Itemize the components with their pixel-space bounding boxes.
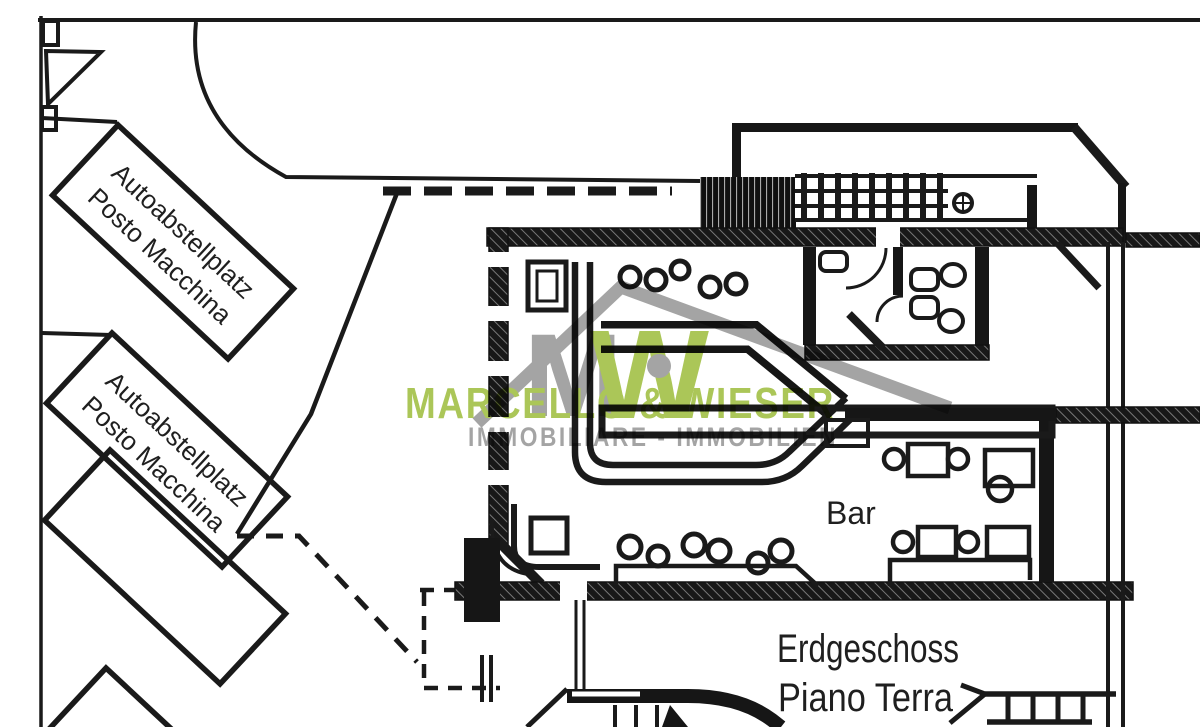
fence-wedge [662, 705, 688, 727]
parking-space-4 [41, 668, 282, 727]
stool [648, 546, 668, 566]
pergola-trellis [795, 173, 1037, 222]
wc-inner-partition [893, 247, 903, 295]
wc-door-swing-1 [846, 248, 886, 288]
stairs-direction-chevron [950, 685, 985, 723]
lounge-bench [514, 504, 600, 567]
floor-plan-page: Autoabstellplatz Posto Macchina Autoabst… [0, 0, 1200, 727]
lounge-table [531, 518, 567, 553]
stool [748, 553, 768, 573]
wc-right-wall [975, 247, 989, 345]
top-wall-door-gap [876, 226, 900, 248]
boundary-triangle [46, 51, 101, 104]
exterior-stairs [950, 685, 1116, 723]
chair [948, 449, 968, 469]
watermark-logo-dot [647, 354, 671, 378]
chair [958, 532, 978, 552]
wall-stub-upper-right [1126, 233, 1200, 247]
parking-space-2-outline [47, 333, 288, 567]
parking-connector-2 [42, 333, 111, 335]
stool [683, 534, 705, 556]
toilet-2-tank [911, 297, 938, 318]
bottom-wall-door-gap [560, 580, 587, 602]
wc-bottom-wall [805, 345, 989, 360]
parking-connector-1 [42, 118, 117, 122]
toilet-1-tank [911, 269, 938, 290]
left-wall-window-2 [486, 306, 511, 321]
terrace-chamfer-wall [1074, 127, 1126, 187]
stool [708, 540, 730, 562]
black-pillar [464, 538, 500, 622]
wc-left-partition [803, 247, 816, 345]
boundary-post-1 [43, 21, 58, 45]
stool [726, 274, 746, 294]
floor-plan-drawing: Autoabstellplatz Posto Macchina Autoabst… [0, 0, 1200, 727]
bar-room-label: Bar [826, 495, 876, 531]
trellis-end-post [1027, 185, 1037, 233]
left-wall-window-5 [486, 470, 511, 485]
service-counter-solid [845, 408, 1055, 421]
wc-sink [820, 252, 847, 271]
walkway-diagonal [527, 689, 567, 727]
trellis-slats [795, 173, 948, 222]
bar-room-right-wall [1039, 420, 1054, 582]
dashed-boundary-line [237, 536, 417, 662]
main-top-wall [487, 228, 1123, 246]
corner-table [528, 262, 566, 310]
floor-label-german: Erdgeschoss [777, 627, 959, 671]
parking-area: Autoabstellplatz Posto Macchina Autoabst… [41, 21, 294, 727]
parking-space-4-outline [41, 668, 282, 727]
chair [988, 477, 1012, 501]
wc-rooms [803, 247, 989, 360]
toilet-2-bowl [939, 310, 963, 332]
parking-space-2: Autoabstellplatz Posto Macchina [47, 333, 288, 567]
watermark-company-name: MARCELLO & WIESER [405, 379, 835, 428]
bottom-wall [455, 582, 1133, 600]
wall-stub-mid-right [1056, 407, 1200, 423]
chair [893, 532, 913, 552]
stool [770, 540, 792, 562]
wc-door-swing-2 [877, 296, 903, 322]
stool [700, 277, 720, 297]
dark-hatched-block [700, 177, 796, 230]
stool [646, 270, 666, 290]
path-guide-line [576, 600, 584, 689]
terrace-top-wall [732, 123, 1078, 132]
plot-boundary-line [237, 193, 397, 534]
table [918, 527, 956, 557]
right-diagonal-wall [1057, 243, 1099, 288]
left-wall-window-3 [486, 361, 511, 376]
road-curb-curve [195, 22, 700, 181]
floor-label-italian: Piano Terra [778, 676, 954, 720]
table [908, 444, 948, 476]
corner-table-inner [537, 271, 557, 301]
chair [884, 449, 904, 469]
watermark-tagline: IMMOBILIARE - IMMOBILIEN [468, 422, 838, 452]
toilet-1-bowl [941, 264, 965, 286]
left-wall-window-1 [486, 252, 511, 267]
terrace-left-wall [732, 123, 741, 181]
boundary-tick-marks [482, 655, 491, 702]
table [987, 527, 1029, 557]
stool [671, 261, 689, 279]
stool [619, 536, 641, 558]
